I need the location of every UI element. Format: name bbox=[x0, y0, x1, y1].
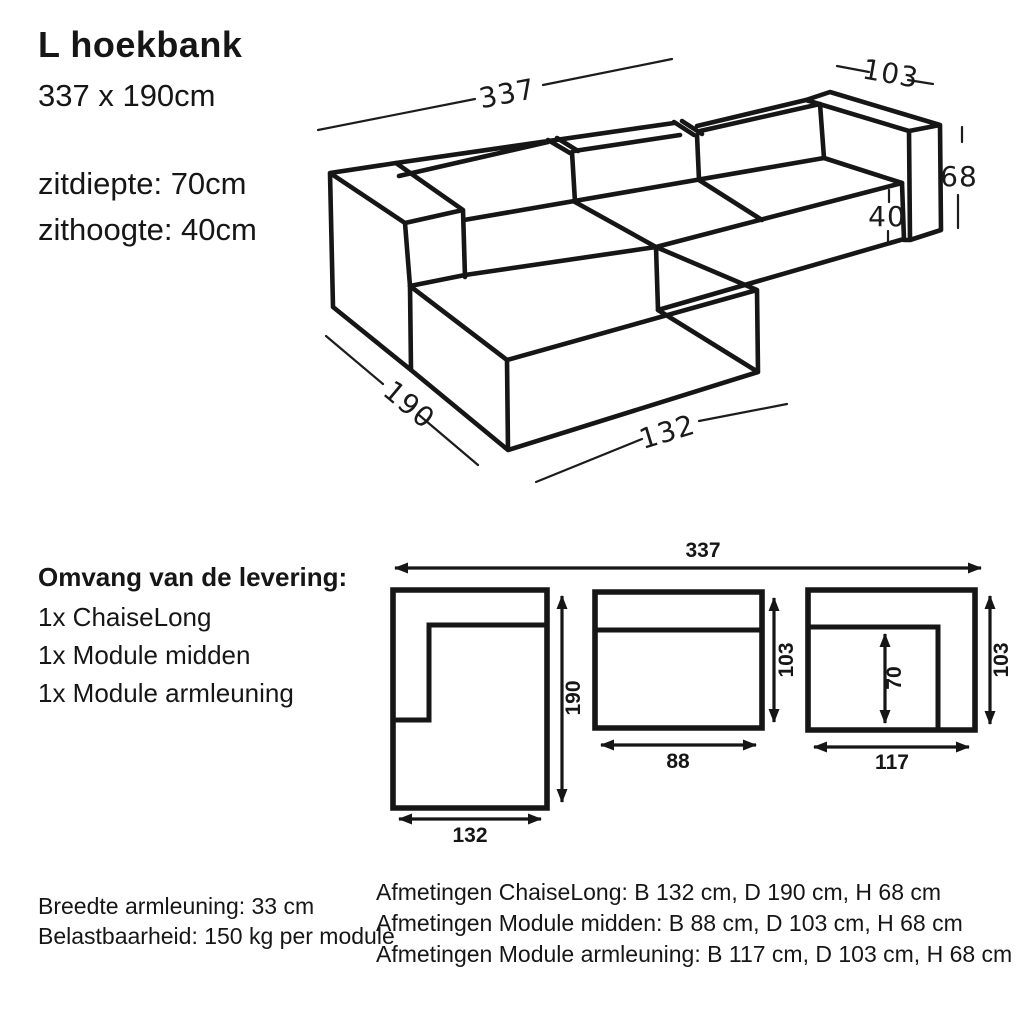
plan-chaise-width-label: 132 bbox=[452, 824, 487, 847]
delivery-item-chaiselong: 1x ChaiseLong bbox=[38, 602, 211, 633]
iso-dim-module-depth-label: 103 bbox=[860, 52, 921, 94]
iso-dim-length-label: 337 bbox=[476, 72, 538, 115]
plan-armleuning-depth-label: 103 bbox=[990, 642, 1013, 677]
plan-armleuning-outline bbox=[808, 590, 975, 730]
note-dimensions-chaiselong: Afmetingen ChaiseLong: B 132 cm, D 190 c… bbox=[376, 879, 941, 906]
delivery-heading: Omvang van de levering: bbox=[38, 562, 347, 593]
plan-chaise-inner-lines bbox=[393, 625, 547, 720]
plan-drawing: 337 190 132 103 88 70 103 117 bbox=[393, 539, 1013, 847]
iso-dim-seat-height-label: 40 bbox=[868, 200, 906, 233]
technical-drawing: 337 103 68 40 190 132 337 190 132 103 88… bbox=[0, 0, 1024, 1024]
plan-armleuning-width-label: 117 bbox=[875, 751, 909, 774]
plan-midden-width-label: 88 bbox=[666, 750, 690, 773]
plan-midden-outline bbox=[595, 592, 762, 728]
plan-armleuning-seat-depth-label: 70 bbox=[883, 666, 906, 689]
note-dimensions-module-armleuning: Afmetingen Module armleuning: B 117 cm, … bbox=[376, 941, 1012, 968]
note-armrest-width: Breedte armleuning: 33 cm bbox=[38, 893, 314, 920]
iso-left-armrest bbox=[330, 163, 465, 370]
delivery-item-module-midden: 1x Module midden bbox=[38, 640, 250, 671]
note-dimensions-module-midden: Afmetingen Module midden: B 88 cm, D 103… bbox=[376, 910, 963, 937]
iso-dim-height-label: 68 bbox=[940, 160, 978, 193]
iso-sofa-drawing: 337 103 68 40 190 132 bbox=[318, 52, 978, 482]
plan-midden-depth-label: 103 bbox=[775, 642, 798, 677]
delivery-item-module-armleuning: 1x Module armleuning bbox=[38, 678, 294, 709]
plan-total-width-label: 337 bbox=[685, 539, 720, 562]
note-load-capacity: Belastbaarheid: 150 kg per module bbox=[38, 923, 395, 950]
plan-chaise-depth-label: 190 bbox=[562, 680, 585, 715]
plan-armleuning-inner-lines bbox=[808, 627, 938, 730]
iso-backrest bbox=[396, 100, 824, 220]
iso-dim-chaise-width-label: 132 bbox=[635, 408, 699, 456]
product-spec-page: { "header": { "title": "L hoekbank", "si… bbox=[0, 0, 1024, 1024]
